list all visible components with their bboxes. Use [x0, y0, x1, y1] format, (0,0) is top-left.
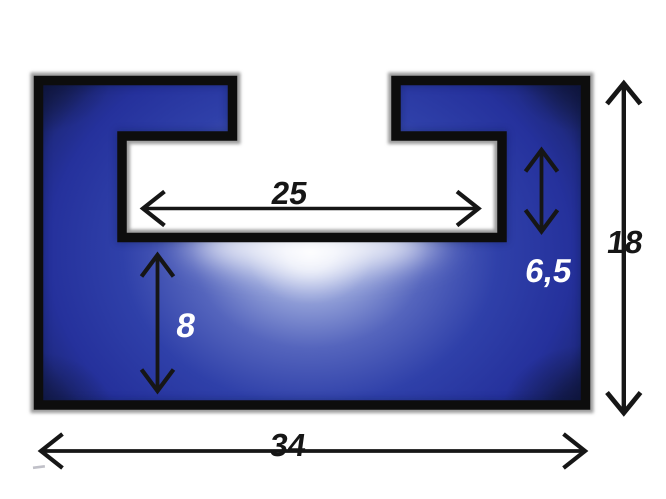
svg-text:18: 18 — [605, 224, 646, 260]
svg-text:25: 25 — [269, 175, 310, 211]
svg-text:34: 34 — [268, 427, 309, 463]
svg-text:6,5: 6,5 — [523, 253, 574, 290]
